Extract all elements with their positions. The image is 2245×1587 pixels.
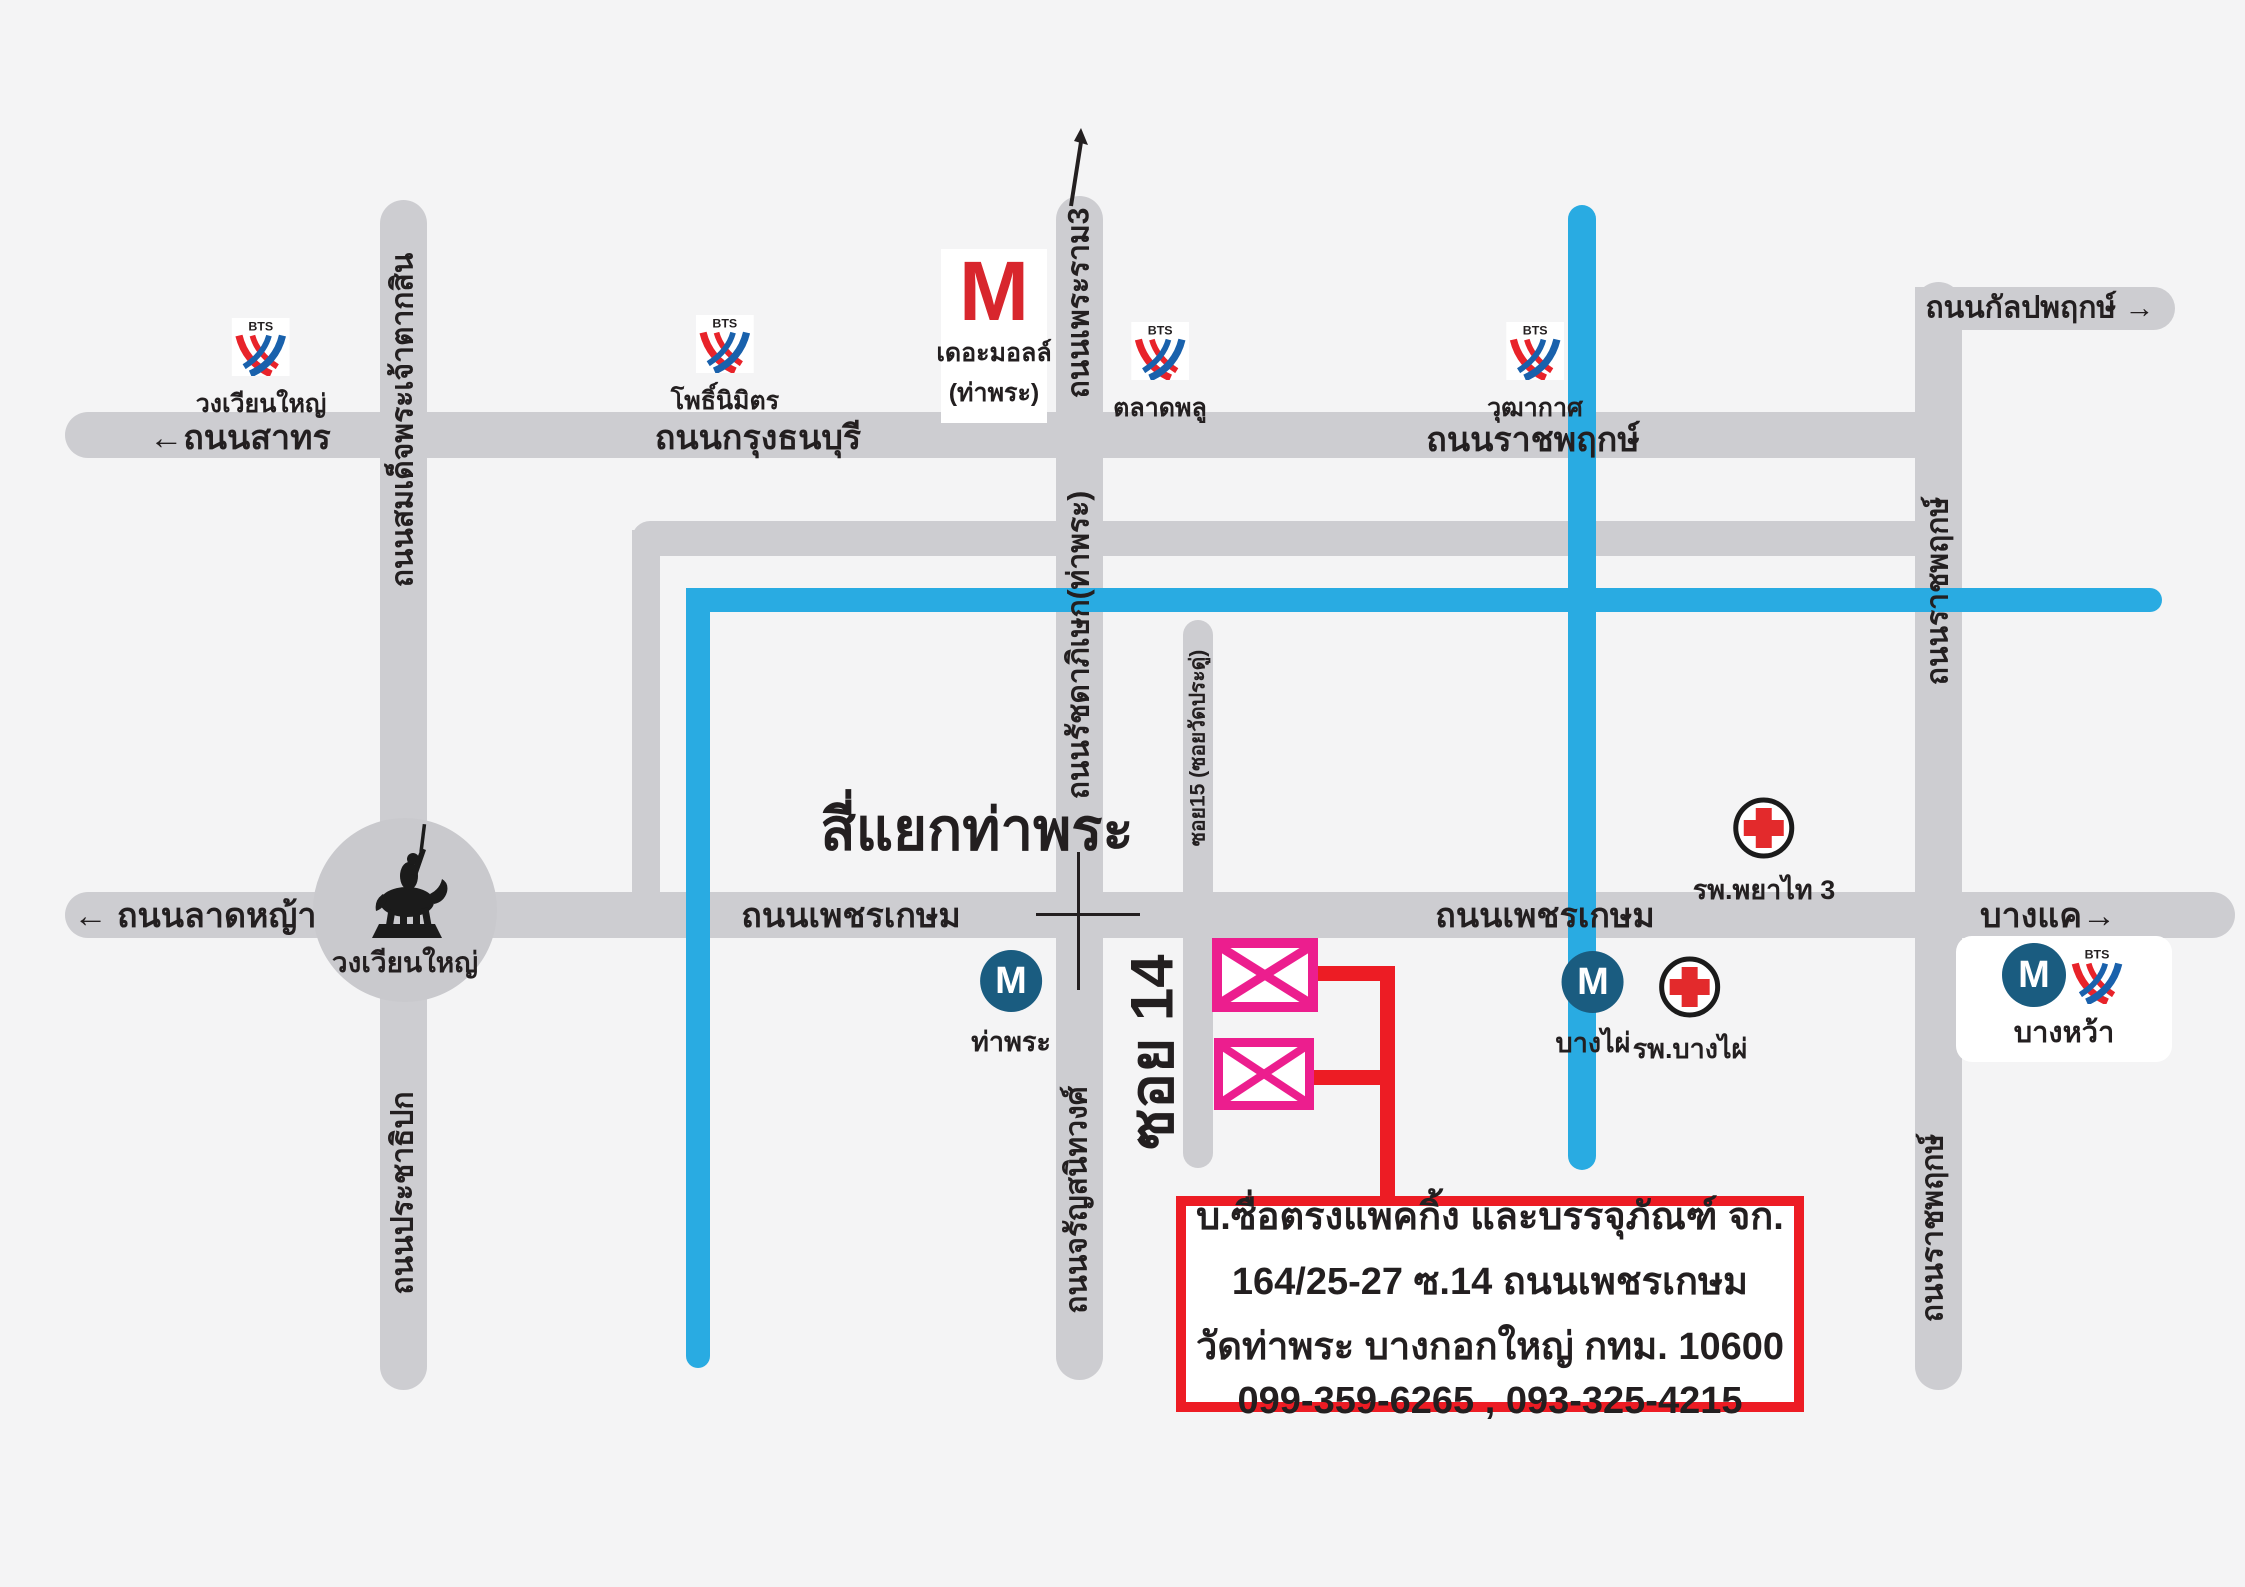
company-name: บ.ซื่อตรงแพคกิ้ง และบรรจุภัณฑ์ จก. xyxy=(1196,1185,1784,1246)
mrt-station-bangphai: M บางไผ่ xyxy=(1556,951,1631,1064)
hospital-bangphai: รพ.บางไผ่ xyxy=(1633,955,1748,1070)
road-label-ratchadapisek: ถนนรัชดาภิเษก(ท่าพระ) xyxy=(1056,491,1103,800)
road-secondary-horizontal xyxy=(632,521,1962,556)
mrt-m-letter: M xyxy=(2018,954,2050,997)
hospital-cross-icon xyxy=(1732,796,1796,860)
mrt-station-thaphra: M ท่าพระ xyxy=(971,950,1051,1063)
east-arrow: → xyxy=(2082,897,2116,935)
crossed-box-icon xyxy=(1223,1047,1305,1101)
hospital-label: รพ.บางไผ่ xyxy=(1633,1027,1748,1070)
bts-station-label: โพธิ์นิมิตร xyxy=(671,381,779,421)
destination-building-upper xyxy=(1212,938,1318,1012)
road-label-ratchaphruek-upper: ถนนราชพฤกษ์ xyxy=(1915,497,1962,685)
the-mall-label-line2: (ท่าพระ) xyxy=(949,373,1040,413)
mrt-m-letter: M xyxy=(995,960,1027,1003)
mrt-m-letter: M xyxy=(1577,961,1609,1004)
intersection-crosshair-horizontal xyxy=(1036,913,1140,916)
road-label-prachathipok: ถนนประชาธิปก xyxy=(380,1091,427,1294)
the-mall-label-line1: เดอะมอลล์ xyxy=(936,333,1051,373)
thaphra-intersection-label: สี่แยกท่าพระ xyxy=(820,783,1133,876)
bts-station-talatphlu: BTS ตลาดพลู xyxy=(1113,322,1207,428)
bts-logo-icon: BTS xyxy=(1506,322,1564,380)
mrt-logo-icon: M xyxy=(980,950,1042,1012)
destination-building-lower xyxy=(1214,1038,1314,1110)
hospital-phyathai3: รพ.พยาไท 3 xyxy=(1693,796,1835,911)
road-secondary-vertical-stub xyxy=(632,530,660,901)
road-label-phetkasem-left: ถนนเพชรเกษม xyxy=(741,888,960,942)
route-vertical xyxy=(1380,966,1395,1206)
west-arrow: ← xyxy=(73,897,107,935)
mrt-logo-icon: M xyxy=(2002,943,2066,1007)
road-label-taksin: ถนนสมเด็จพระเจ้าตากสิน xyxy=(380,253,427,588)
bts-brand-text: BTS xyxy=(713,316,738,330)
road-label-ratchaphruek-lower: ถนนราชพฤกษ์ xyxy=(1910,1134,1957,1322)
canal-vertical-left xyxy=(686,588,710,1368)
bts-brand-text: BTS xyxy=(1148,323,1173,337)
road-label-bangkhae: บางแค→ xyxy=(1980,888,2116,942)
company-address-line2: วัดท่าพระ บางกอกใหญ่ กทม. 10600 xyxy=(1196,1315,1784,1376)
bts-station-wutthakat: BTS วุฒากาศ xyxy=(1487,322,1583,428)
mrt-station-label: บางหว้า xyxy=(2014,1009,2115,1055)
road-label-latya: ← ถนนลาดหญ้า xyxy=(73,888,316,942)
road-label-soi15: ซอย15 (ซอยวัดประดู่) xyxy=(1182,650,1215,846)
map-canvas: บ.ซื่อตรงแพคกิ้ง และบรรจุภัณฑ์ จก. 164/2… xyxy=(0,0,2245,1587)
bts-logo-icon: BTS xyxy=(696,315,754,373)
taksin-statue-icon xyxy=(357,822,453,940)
bts-station-label: วงเวียนใหญ่ xyxy=(196,384,327,424)
bts-logo-icon: BTS xyxy=(2068,946,2126,1004)
bts-logo-icon: BTS xyxy=(232,318,290,376)
road-label-rama3: ถนนเพระราม3 xyxy=(1056,208,1103,399)
mrt-station-label: ท่าพระ xyxy=(971,1020,1051,1063)
bts-station-label: วุฒากาศ xyxy=(1487,388,1583,428)
bts-brand-text: BTS xyxy=(2085,947,2110,961)
east-arrow: → xyxy=(2125,292,2155,325)
road-label-kalpapruek: ถนนกัลปพฤกษ์ → xyxy=(1926,285,2155,332)
mrt-station-label: บางไผ่ xyxy=(1556,1021,1631,1064)
road-label-phetkasem-right: ถนนเพชรเกษม xyxy=(1435,888,1654,942)
bts-brand-text: BTS xyxy=(1523,323,1548,337)
road-label-soi14: ซอย 14 xyxy=(1105,954,1200,1149)
west-arrow: ← xyxy=(149,419,183,457)
bangwa-panel: M BTS บางหว้า xyxy=(1956,936,2172,1062)
bts-logo-icon: BTS xyxy=(1131,322,1189,380)
mrt-logo-icon: M xyxy=(1562,951,1624,1013)
company-phone: 099-359-6265 , 093-325-4215 xyxy=(1238,1380,1743,1423)
north-arrow-icon xyxy=(1055,128,1095,208)
bts-station-phonimit: BTS โพธิ์นิมิตร xyxy=(671,315,779,421)
bts-brand-text: BTS xyxy=(249,319,274,333)
company-address-line1: 164/25-27 ซ.14 ถนนเพชรเกษม xyxy=(1232,1250,1748,1311)
hospital-cross-icon xyxy=(1658,955,1722,1019)
road-label-charansanitwong: ถนนจรัญสนิทวงศ์ xyxy=(1054,1086,1101,1314)
company-info-box: บ.ซื่อตรงแพคกิ้ง และบรรจุภัณฑ์ จก. 164/2… xyxy=(1176,1196,1804,1412)
the-mall-m-logo: M xyxy=(959,249,1029,333)
crossed-box-icon xyxy=(1222,948,1308,1002)
hospital-label: รพ.พยาไท 3 xyxy=(1693,868,1835,911)
bts-station-label: ตลาดพลู xyxy=(1113,388,1207,428)
wongwianyai-roundabout-label: วงเวียนใหญ่ xyxy=(332,941,478,985)
bts-station-wongwianyai: BTS วงเวียนใหญ่ xyxy=(196,318,327,424)
the-mall-panel: M เดอะมอลล์ (ท่าพระ) xyxy=(941,249,1047,423)
